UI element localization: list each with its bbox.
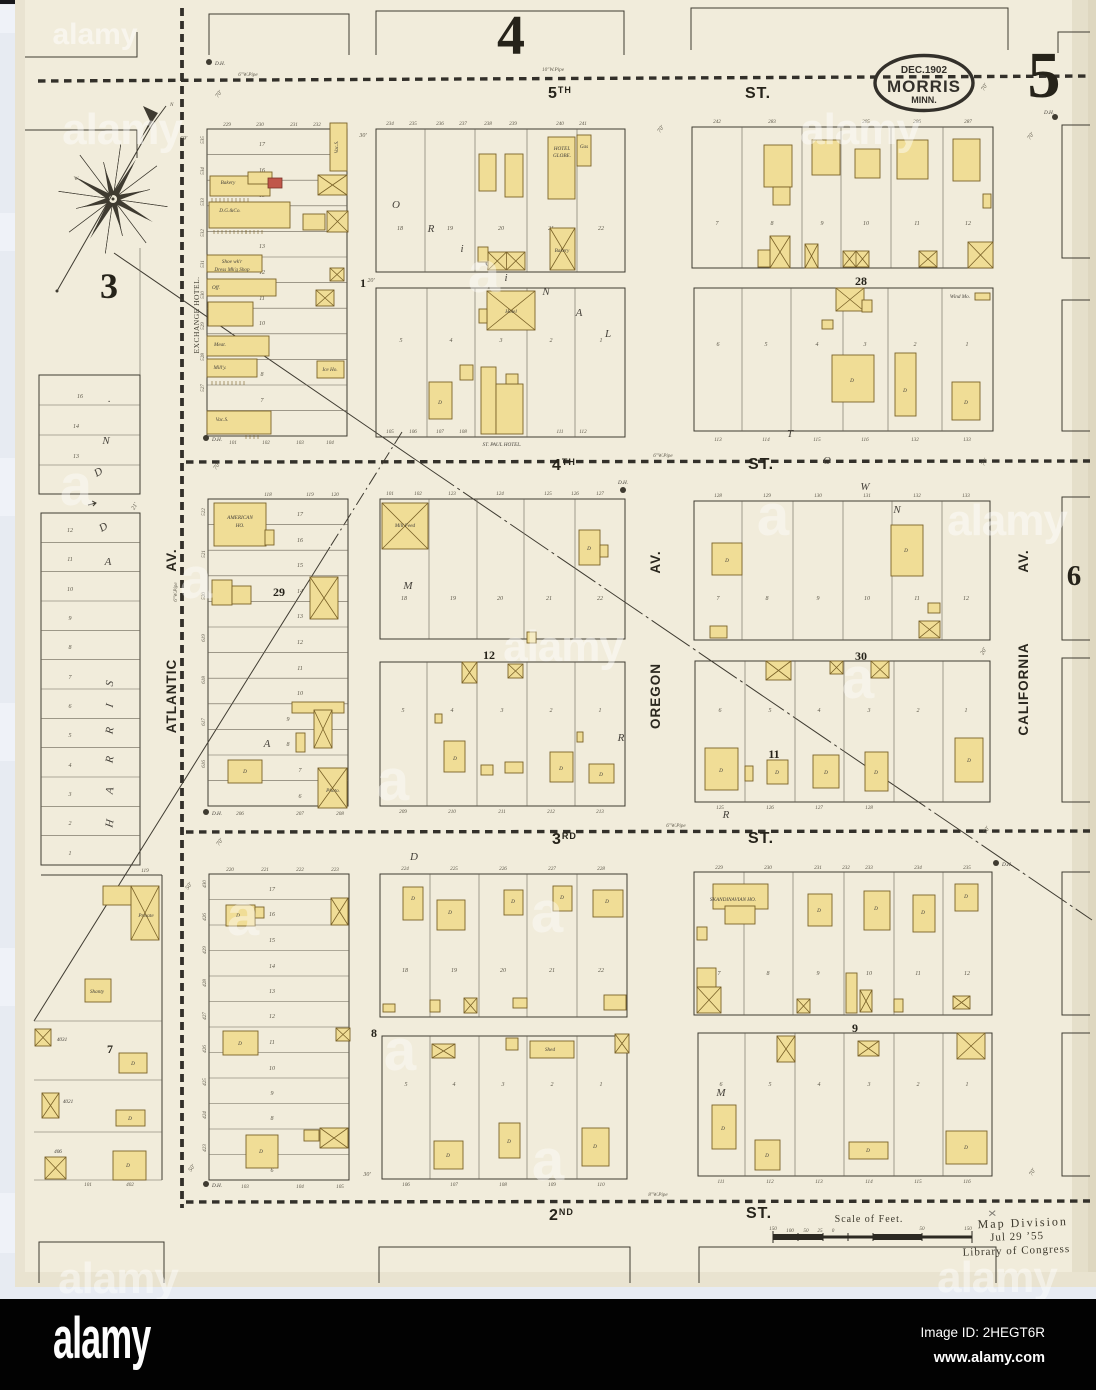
svg-text:D: D <box>258 1149 263 1155</box>
svg-text:3: 3 <box>500 708 504 714</box>
svg-text:D: D <box>558 766 563 772</box>
svg-text:10: 10 <box>864 596 870 602</box>
svg-text:15: 15 <box>297 563 303 569</box>
svg-text:ATLANTIC: ATLANTIC <box>164 659 179 734</box>
svg-text:5: 5 <box>1028 39 1061 112</box>
svg-text:533: 533 <box>200 198 206 206</box>
svg-text:237: 237 <box>459 121 467 127</box>
svg-text:118: 118 <box>264 492 272 498</box>
svg-text:12: 12 <box>965 221 971 227</box>
svg-text:132: 132 <box>911 437 919 443</box>
svg-text:6"W.Pipe: 6"W.Pipe <box>173 582 179 602</box>
svg-text:226: 226 <box>499 866 507 872</box>
svg-text:119: 119 <box>306 492 314 498</box>
svg-text:232: 232 <box>313 122 321 128</box>
svg-text:10: 10 <box>866 971 872 977</box>
svg-text:T: T <box>787 428 794 440</box>
svg-text:100: 100 <box>786 1228 794 1234</box>
svg-text:1: 1 <box>360 276 366 290</box>
svg-text:5: 5 <box>69 733 72 739</box>
svg-text:108: 108 <box>459 429 467 435</box>
svg-text:a: a <box>227 883 260 948</box>
svg-text:16: 16 <box>269 912 275 918</box>
svg-text:239: 239 <box>509 121 517 127</box>
svg-text:619: 619 <box>201 634 207 642</box>
svg-text:MINN.: MINN. <box>911 95 937 105</box>
svg-text:101: 101 <box>229 440 237 446</box>
svg-text:M: M <box>715 1087 726 1099</box>
svg-text:a: a <box>757 483 790 548</box>
svg-text:223: 223 <box>331 867 339 873</box>
svg-text:alamy: alamy <box>947 496 1068 545</box>
svg-text:227: 227 <box>548 866 556 872</box>
svg-text:231: 231 <box>290 122 298 128</box>
svg-text:7: 7 <box>107 1042 113 1056</box>
svg-text:R: R <box>427 223 435 235</box>
svg-text:0: 0 <box>832 1228 835 1234</box>
svg-text:115: 115 <box>914 1179 922 1185</box>
svg-text:424: 424 <box>201 1111 208 1119</box>
svg-text:Mill Feed: Mill Feed <box>394 523 416 529</box>
svg-text:105: 105 <box>386 429 394 435</box>
svg-text:230: 230 <box>764 865 772 871</box>
svg-text:A: A <box>575 307 583 319</box>
svg-text:1: 1 <box>966 342 969 348</box>
svg-text:127: 127 <box>815 805 823 811</box>
svg-text:131: 131 <box>863 493 871 499</box>
svg-text:133: 133 <box>963 437 971 443</box>
svg-text:14: 14 <box>73 423 79 430</box>
svg-text:230: 230 <box>256 122 264 128</box>
svg-text:1: 1 <box>600 1082 603 1088</box>
svg-text:Private: Private <box>137 913 154 919</box>
svg-text:22: 22 <box>598 968 604 974</box>
svg-text:5: 5 <box>765 342 768 348</box>
svg-text:Mill'y.: Mill'y. <box>212 365 226 371</box>
svg-text:402: 402 <box>126 1181 134 1188</box>
svg-text:9: 9 <box>271 1091 274 1097</box>
svg-text:6: 6 <box>299 794 302 800</box>
svg-text:10"W.Pipe: 10"W.Pipe <box>542 67 565 73</box>
svg-text:1: 1 <box>600 338 603 344</box>
svg-text:5: 5 <box>402 708 405 714</box>
svg-text:2: 2 <box>551 1082 554 1088</box>
svg-text:4021: 4021 <box>63 1098 74 1105</box>
svg-text:532: 532 <box>200 229 206 237</box>
svg-text:O: O <box>392 199 400 211</box>
svg-text:D: D <box>127 1116 132 1122</box>
svg-text:125: 125 <box>544 491 552 497</box>
svg-text:6"W.Pipe: 6"W.Pipe <box>653 453 673 459</box>
svg-text:D: D <box>902 388 907 394</box>
svg-text:a: a <box>468 240 501 305</box>
svg-text:11: 11 <box>914 596 920 602</box>
svg-text:11: 11 <box>915 971 921 977</box>
svg-text:13: 13 <box>297 614 303 620</box>
svg-text:110: 110 <box>597 1182 605 1188</box>
svg-text:ST.: ST. <box>745 85 771 102</box>
svg-text:213: 213 <box>596 809 604 815</box>
svg-text:225: 225 <box>450 866 458 872</box>
svg-text:16: 16 <box>77 394 83 400</box>
svg-text:D: D <box>764 1153 769 1159</box>
svg-text:4: 4 <box>451 707 454 714</box>
svg-text:238: 238 <box>484 121 492 127</box>
svg-text:116: 116 <box>861 437 869 443</box>
svg-text:D: D <box>410 896 415 902</box>
svg-text:D: D <box>598 772 603 778</box>
svg-text:50: 50 <box>803 1228 809 1234</box>
svg-text:alamy: alamy <box>937 1253 1058 1302</box>
svg-text:211: 211 <box>498 809 506 815</box>
svg-text:425: 425 <box>201 1078 208 1086</box>
svg-text:11: 11 <box>269 1040 275 1046</box>
svg-text:113: 113 <box>714 437 722 443</box>
svg-text:125: 125 <box>716 805 724 811</box>
svg-text:N: N <box>101 435 110 447</box>
svg-text:229: 229 <box>715 865 723 871</box>
svg-text:D: D <box>963 894 968 900</box>
svg-text:530: 530 <box>200 291 206 299</box>
svg-text:11: 11 <box>297 666 303 672</box>
svg-text:4: 4 <box>497 5 525 67</box>
svg-text:6: 6 <box>717 342 720 348</box>
svg-text:107: 107 <box>450 1182 458 1188</box>
svg-text:10: 10 <box>863 221 869 227</box>
svg-text:8: 8 <box>261 372 264 378</box>
svg-text:231: 231 <box>814 865 822 871</box>
svg-text:D: D <box>125 1163 130 1169</box>
svg-text:AV.: AV. <box>164 548 179 571</box>
svg-text:3: 3 <box>501 1082 505 1088</box>
svg-text:a: a <box>60 453 93 518</box>
svg-text:426: 426 <box>201 913 208 921</box>
svg-text:11: 11 <box>259 296 265 302</box>
svg-text:6: 6 <box>1067 560 1082 592</box>
svg-text:220: 220 <box>226 867 234 873</box>
svg-text:4: 4 <box>816 341 819 348</box>
svg-text:28: 28 <box>855 274 867 288</box>
svg-text:17: 17 <box>259 142 266 148</box>
svg-text:236: 236 <box>436 121 444 127</box>
svg-text:a: a <box>531 880 564 945</box>
svg-text:13: 13 <box>269 989 275 995</box>
svg-text:i: i <box>460 243 463 255</box>
svg-text:O: O <box>823 455 831 467</box>
svg-text:207: 207 <box>296 811 304 817</box>
svg-text:206: 206 <box>236 811 244 817</box>
svg-text:9: 9 <box>287 717 290 723</box>
svg-text:111: 111 <box>556 429 563 435</box>
svg-text:234: 234 <box>386 120 394 127</box>
svg-text:112: 112 <box>579 429 587 435</box>
svg-text:102: 102 <box>262 440 270 446</box>
svg-text:4: 4 <box>818 1081 821 1088</box>
svg-text:1: 1 <box>69 851 72 857</box>
svg-text:11: 11 <box>914 221 920 227</box>
svg-text:D: D <box>586 546 591 552</box>
svg-text:428: 428 <box>201 979 208 987</box>
svg-text:Bakery: Bakery <box>221 180 236 186</box>
svg-text:8: 8 <box>69 645 72 651</box>
svg-text:ST.: ST. <box>748 456 774 473</box>
svg-text:9: 9 <box>817 971 820 977</box>
svg-text:124: 124 <box>496 490 504 497</box>
svg-text:20′: 20′ <box>367 278 375 284</box>
svg-text:426: 426 <box>201 1045 208 1053</box>
svg-text:OREGON: OREGON <box>648 663 663 729</box>
svg-text:242: 242 <box>713 118 721 125</box>
svg-text:6: 6 <box>271 1168 274 1174</box>
svg-text:Off.: Off. <box>212 284 220 291</box>
svg-text:618: 618 <box>201 676 207 684</box>
svg-text:429: 429 <box>201 946 208 954</box>
svg-text:alamy: alamy <box>62 105 183 154</box>
svg-text:D: D <box>823 770 828 776</box>
svg-text:Ice Ho.: Ice Ho. <box>321 367 337 373</box>
svg-text:15: 15 <box>269 938 275 944</box>
svg-text:4: 4 <box>450 337 453 344</box>
svg-text:212: 212 <box>547 809 555 815</box>
svg-text:6: 6 <box>719 708 722 714</box>
svg-text:22: 22 <box>598 226 604 232</box>
svg-text:Shed: Shed <box>545 1047 555 1053</box>
svg-text:20: 20 <box>498 226 504 232</box>
svg-text:617: 617 <box>201 718 207 726</box>
svg-text:2: 2 <box>917 1082 920 1088</box>
svg-text:8"W.Pipe: 8"W.Pipe <box>648 1192 668 1198</box>
svg-text:a: a <box>180 546 213 611</box>
svg-text:Vac.S.: Vac.S. <box>216 417 229 423</box>
svg-text:D.H.: D.H. <box>1043 110 1054 116</box>
svg-text:Meat.: Meat. <box>213 342 226 348</box>
svg-text:D: D <box>774 770 779 776</box>
svg-text:3: 3 <box>863 342 867 348</box>
svg-text:D: D <box>409 851 418 863</box>
svg-text:12: 12 <box>483 648 495 662</box>
svg-text:102: 102 <box>414 491 422 497</box>
svg-text:14: 14 <box>297 588 303 595</box>
svg-text:104: 104 <box>296 1183 304 1190</box>
svg-text:1: 1 <box>966 1082 969 1088</box>
svg-text:10: 10 <box>259 321 265 327</box>
svg-text:6"W.Pipe: 6"W.Pipe <box>666 823 686 829</box>
svg-text:150: 150 <box>964 1226 972 1232</box>
svg-text:4: 4 <box>818 707 821 714</box>
svg-text:427: 427 <box>201 1012 208 1020</box>
svg-text:D: D <box>445 1153 450 1159</box>
svg-text:a: a <box>842 646 875 711</box>
svg-text:A: A <box>263 738 271 750</box>
svg-text:12: 12 <box>297 640 303 646</box>
svg-text:423: 423 <box>201 1144 208 1152</box>
svg-text:5: 5 <box>400 338 403 344</box>
svg-text:GLOBE.: GLOBE. <box>553 153 571 159</box>
svg-text:10: 10 <box>269 1066 275 1072</box>
svg-text:50: 50 <box>919 1226 925 1232</box>
svg-text:D: D <box>724 558 729 564</box>
svg-text:120: 120 <box>331 492 339 498</box>
svg-text:2: 2 <box>69 821 72 827</box>
svg-text:283: 283 <box>768 119 776 125</box>
svg-text:25: 25 <box>817 1228 823 1234</box>
svg-text:19: 19 <box>450 596 456 602</box>
svg-text:126: 126 <box>571 491 579 497</box>
svg-text:233: 233 <box>865 865 873 871</box>
svg-text:116: 116 <box>963 1179 971 1185</box>
svg-text:150: 150 <box>769 1226 777 1232</box>
svg-text:D: D <box>903 548 908 554</box>
svg-text:A: A <box>104 556 112 568</box>
svg-text:3: 3 <box>499 338 503 344</box>
svg-text:Shanty: Shanty <box>90 989 105 995</box>
svg-text:19: 19 <box>451 968 457 974</box>
svg-text:616: 616 <box>201 760 207 768</box>
svg-text:i: i <box>504 272 507 284</box>
svg-text:4031: 4031 <box>57 1036 68 1043</box>
svg-text:AV.: AV. <box>648 550 663 573</box>
svg-text:529: 529 <box>200 322 206 330</box>
svg-text:Scale of Feet.: Scale of Feet. <box>835 1214 904 1225</box>
svg-text:9: 9 <box>821 221 824 227</box>
svg-text:228: 228 <box>597 866 605 872</box>
svg-text:14: 14 <box>269 963 275 970</box>
svg-text:AV.: AV. <box>1016 549 1031 572</box>
svg-text:18: 18 <box>397 226 403 232</box>
svg-text:535: 535 <box>200 136 206 144</box>
svg-text:5: 5 <box>769 708 772 714</box>
svg-text:126: 126 <box>766 805 774 811</box>
svg-text:11: 11 <box>768 747 779 761</box>
svg-text:Jul 29 ’55: Jul 29 ’55 <box>990 1230 1044 1244</box>
svg-text:alamy: alamy <box>503 622 624 671</box>
svg-text:Hotel: Hotel <box>504 309 517 315</box>
svg-text:21: 21 <box>549 968 555 974</box>
svg-text:D.H.: D.H. <box>211 1183 222 1189</box>
svg-text:2: 2 <box>914 342 917 348</box>
svg-text:101: 101 <box>386 491 394 497</box>
svg-text:D: D <box>237 1041 242 1047</box>
svg-text:528: 528 <box>200 353 206 361</box>
svg-text:Photo.: Photo. <box>325 788 340 794</box>
svg-text:AMERICAN: AMERICAN <box>226 515 253 521</box>
svg-text:D: D <box>966 758 971 764</box>
svg-text:DEC.1902: DEC.1902 <box>901 65 948 76</box>
svg-text:N: N <box>892 504 901 516</box>
svg-text:4: 4 <box>453 1081 456 1088</box>
svg-text:106: 106 <box>409 429 417 435</box>
svg-text:12: 12 <box>964 971 970 977</box>
svg-text:D.H.: D.H. <box>214 61 225 67</box>
svg-text:229: 229 <box>223 122 231 128</box>
svg-text:D: D <box>437 400 442 406</box>
svg-text:2: 2 <box>917 708 920 714</box>
svg-text:114: 114 <box>865 1178 873 1185</box>
svg-text:12: 12 <box>269 1014 275 1020</box>
svg-text:104: 104 <box>326 439 334 446</box>
svg-text:D.G.&Co.: D.G.&Co. <box>218 208 240 214</box>
svg-text:D.H.: D.H. <box>1001 862 1012 868</box>
svg-text:www.alamy.com: www.alamy.com <box>933 1350 1045 1366</box>
svg-text:128: 128 <box>865 805 873 811</box>
svg-text:11: 11 <box>67 557 73 563</box>
svg-text:8: 8 <box>771 221 774 227</box>
svg-text:240: 240 <box>556 120 564 127</box>
svg-text:10: 10 <box>297 691 303 697</box>
svg-text:D: D <box>720 1126 725 1132</box>
svg-text:115: 115 <box>813 437 821 443</box>
svg-text:20: 20 <box>500 968 506 974</box>
svg-text:210: 210 <box>448 809 456 815</box>
svg-text:D: D <box>510 899 515 905</box>
svg-text:105: 105 <box>336 1184 344 1190</box>
svg-text:8: 8 <box>371 1026 377 1040</box>
svg-text:112: 112 <box>766 1179 774 1185</box>
svg-text:18: 18 <box>401 596 407 602</box>
svg-text:EXCHANGE HOTEL.: EXCHANGE HOTEL. <box>192 276 201 353</box>
svg-text:D: D <box>604 899 609 905</box>
svg-text:113: 113 <box>815 1179 823 1185</box>
svg-text:Image ID: 2HEGT6R: Image ID: 2HEGT6R <box>920 1325 1045 1340</box>
svg-text:5: 5 <box>769 1082 772 1088</box>
svg-text:D: D <box>592 1144 597 1150</box>
svg-text:3: 3 <box>100 266 118 306</box>
svg-text:D.H.: D.H. <box>211 811 222 817</box>
svg-text:D.H.: D.H. <box>617 480 628 486</box>
svg-text:22: 22 <box>597 596 603 602</box>
svg-text:alamy: alamy <box>52 18 137 51</box>
svg-text:234: 234 <box>914 864 922 871</box>
svg-text:D: D <box>963 400 968 406</box>
svg-text:30′: 30′ <box>358 133 367 139</box>
svg-text:D: D <box>873 770 878 776</box>
svg-text:W: W <box>860 481 870 493</box>
svg-text:12: 12 <box>67 528 73 534</box>
svg-text:1: 1 <box>965 708 968 714</box>
svg-text:6"W.Pipe: 6"W.Pipe <box>238 72 258 78</box>
svg-text:D: D <box>452 756 457 762</box>
svg-text:6: 6 <box>69 704 72 710</box>
svg-text:2: 2 <box>550 338 553 344</box>
svg-text:29: 29 <box>273 585 285 599</box>
svg-text:287: 287 <box>964 119 972 125</box>
svg-text:.: . <box>108 393 111 405</box>
svg-text:128: 128 <box>714 493 722 499</box>
svg-text:18: 18 <box>402 968 408 974</box>
svg-text:8: 8 <box>287 742 290 748</box>
svg-text:D.H.: D.H. <box>211 437 222 443</box>
svg-text:221: 221 <box>261 867 269 873</box>
svg-text:D: D <box>242 769 247 775</box>
svg-text:W: W <box>74 176 79 182</box>
svg-text:CALIFORNIA: CALIFORNIA <box>1016 642 1031 735</box>
svg-text:HO.: HO. <box>235 523 245 529</box>
svg-text:16: 16 <box>297 538 303 544</box>
svg-text:107: 107 <box>436 429 444 435</box>
svg-text:17: 17 <box>297 512 304 518</box>
svg-text:235: 235 <box>409 121 417 127</box>
svg-text:406: 406 <box>54 1148 62 1155</box>
svg-text:119: 119 <box>141 868 149 874</box>
svg-text:8: 8 <box>271 1116 274 1122</box>
svg-text:ST.: ST. <box>746 1205 772 1222</box>
svg-text:ST.: ST. <box>748 830 774 847</box>
svg-text:D: D <box>816 908 821 914</box>
svg-text:2: 2 <box>550 708 553 714</box>
svg-text:235: 235 <box>963 865 971 871</box>
svg-text:8: 8 <box>766 596 769 602</box>
svg-text:531: 531 <box>200 260 206 268</box>
